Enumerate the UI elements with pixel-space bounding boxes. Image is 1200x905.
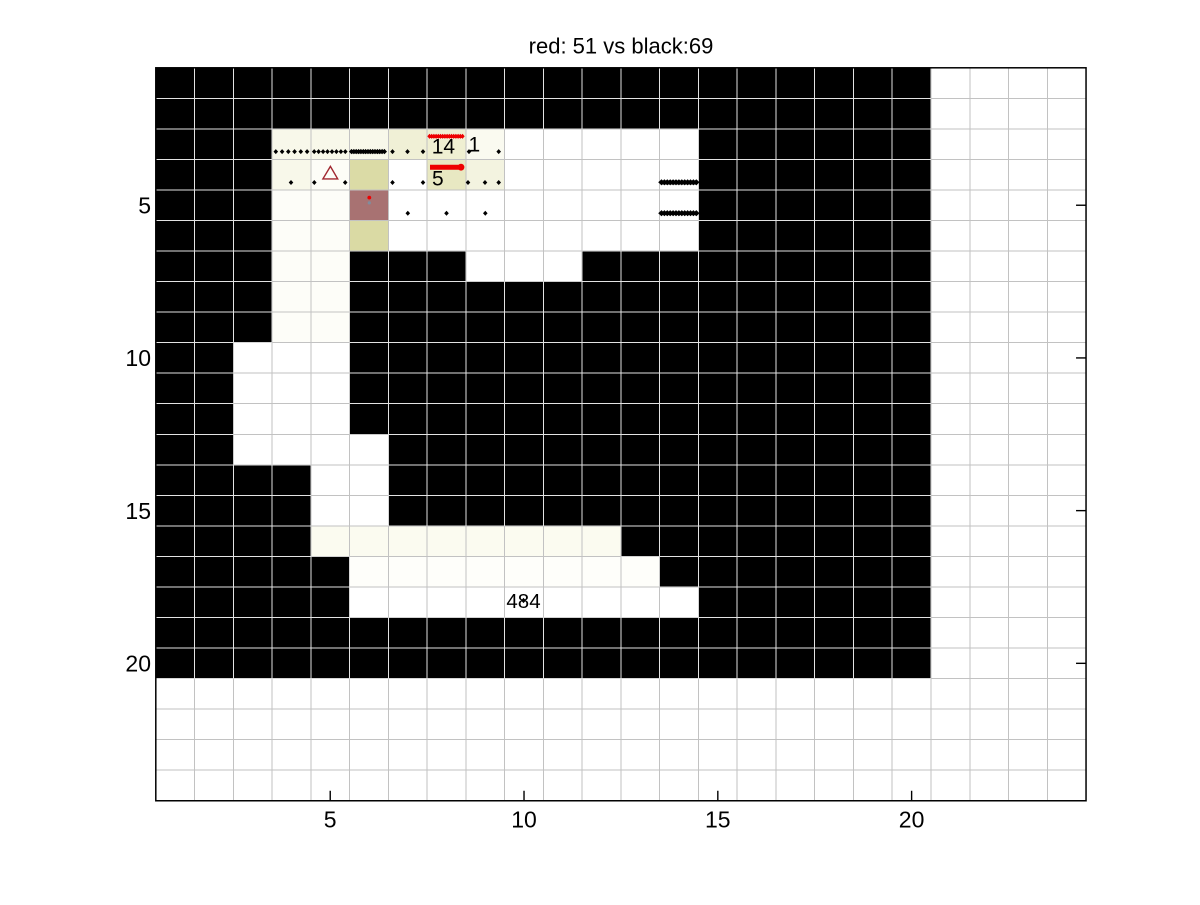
svg-text:5: 5 bbox=[138, 192, 151, 218]
svg-text:15: 15 bbox=[125, 498, 151, 524]
svg-text:1: 1 bbox=[469, 134, 481, 157]
svg-text:15: 15 bbox=[705, 807, 731, 833]
svg-text:484: 484 bbox=[506, 590, 540, 613]
svg-text:14: 14 bbox=[432, 136, 456, 159]
svg-text:20: 20 bbox=[125, 651, 151, 677]
svg-text:5: 5 bbox=[324, 807, 337, 833]
svg-text:red: 51 vs black:69: red: 51 vs black:69 bbox=[529, 34, 714, 59]
svg-text:10: 10 bbox=[125, 345, 151, 371]
svg-text:5: 5 bbox=[432, 168, 444, 191]
svg-text:20: 20 bbox=[899, 807, 925, 833]
svg-text:10: 10 bbox=[511, 807, 537, 833]
